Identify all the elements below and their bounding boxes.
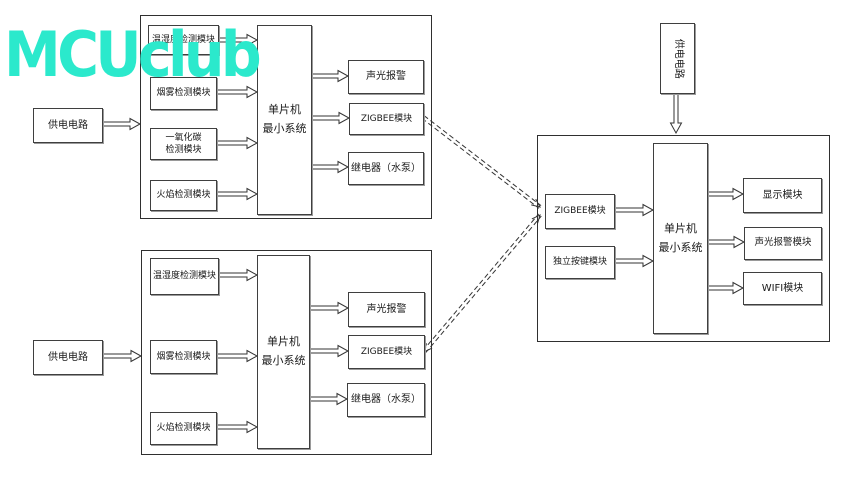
zigbee-label-3: ZIGBEE模块 bbox=[554, 205, 605, 217]
zigbee-module-1: ZIGBEE模块 bbox=[349, 103, 424, 135]
sound-light-alarm-1: 声光报警 bbox=[348, 60, 424, 94]
display-module-label: 显示模块 bbox=[763, 189, 803, 203]
mcu-minimal-system-1: 单片机 最小系统 bbox=[257, 25, 312, 215]
zigbee-label-1: ZIGBEE模块 bbox=[361, 113, 412, 125]
power-supply-box-1: 供电电路 bbox=[33, 108, 103, 143]
smoke-module-2: 烟雾检测模块 bbox=[150, 340, 217, 374]
temp-humidity-label-2: 温湿度检测模块 bbox=[153, 270, 216, 282]
sound-light-alarm-label-3: 声光报警模块 bbox=[754, 237, 811, 250]
mcu-label-2: 单片机 最小系统 bbox=[262, 333, 306, 370]
co-module-1: 一氧化碳 检测模块 bbox=[150, 128, 217, 160]
relay-pump-2: 继电器（水泵） bbox=[347, 383, 425, 417]
mcuclub-watermark: MCUclub bbox=[4, 24, 258, 86]
mcu-minimal-system-2: 单片机 最小系统 bbox=[257, 255, 310, 449]
power-supply-label-3: 供电电路 bbox=[671, 39, 685, 79]
flame-module-2: 火焰检测模块 bbox=[150, 412, 217, 445]
zigbee-module-2: ZIGBEE模块 bbox=[348, 335, 425, 369]
co-label-1: 一氧化碳 检测模块 bbox=[165, 132, 201, 156]
relay-pump-label-1: 继电器（水泵） bbox=[351, 162, 421, 176]
flame-label-2: 火焰检测模块 bbox=[156, 422, 210, 434]
sound-light-alarm-2: 声光报警 bbox=[348, 292, 425, 327]
flame-module-1: 火焰检测模块 bbox=[150, 180, 217, 211]
mcu-label-1: 单片机 最小系统 bbox=[263, 101, 307, 138]
power-supply-label-2: 供电电路 bbox=[48, 351, 88, 365]
sound-light-alarm-label-1: 声光报警 bbox=[366, 70, 406, 84]
zigbee-module-3: ZIGBEE模块 bbox=[545, 194, 615, 229]
mcu-minimal-system-3: 单片机 最小系统 bbox=[653, 143, 708, 334]
mcu-label-3: 单片机 最小系统 bbox=[659, 220, 703, 257]
display-module: 显示模块 bbox=[743, 178, 822, 213]
sound-light-alarm-label-2: 声光报警 bbox=[367, 303, 407, 317]
relay-pump-label-2: 继电器（水泵） bbox=[351, 393, 421, 407]
block-diagram-canvas: 供电电路 温湿度检测模块 烟雾检测模块 一氧化碳 检测模块 火焰检测模块 单片机… bbox=[0, 0, 866, 488]
sound-light-alarm-module-3: 声光报警模块 bbox=[744, 227, 822, 260]
power-supply-box-3: 供电电路 bbox=[660, 23, 695, 94]
power-supply-box-2: 供电电路 bbox=[33, 340, 103, 375]
wifi-module: WIFI模块 bbox=[743, 272, 822, 305]
temp-humidity-module-2: 温湿度检测模块 bbox=[150, 258, 219, 295]
flame-label-1: 火焰检测模块 bbox=[156, 189, 210, 201]
power-supply-label-1: 供电电路 bbox=[48, 119, 88, 133]
wifi-module-label: WIFI模块 bbox=[762, 282, 804, 296]
smoke-label-2: 烟雾检测模块 bbox=[156, 351, 210, 363]
independent-keys-module: 独立按键模块 bbox=[545, 246, 615, 279]
zigbee-label-2: ZIGBEE模块 bbox=[361, 346, 412, 358]
relay-pump-1: 继电器（水泵） bbox=[348, 152, 424, 185]
independent-keys-label: 独立按键模块 bbox=[553, 256, 607, 268]
